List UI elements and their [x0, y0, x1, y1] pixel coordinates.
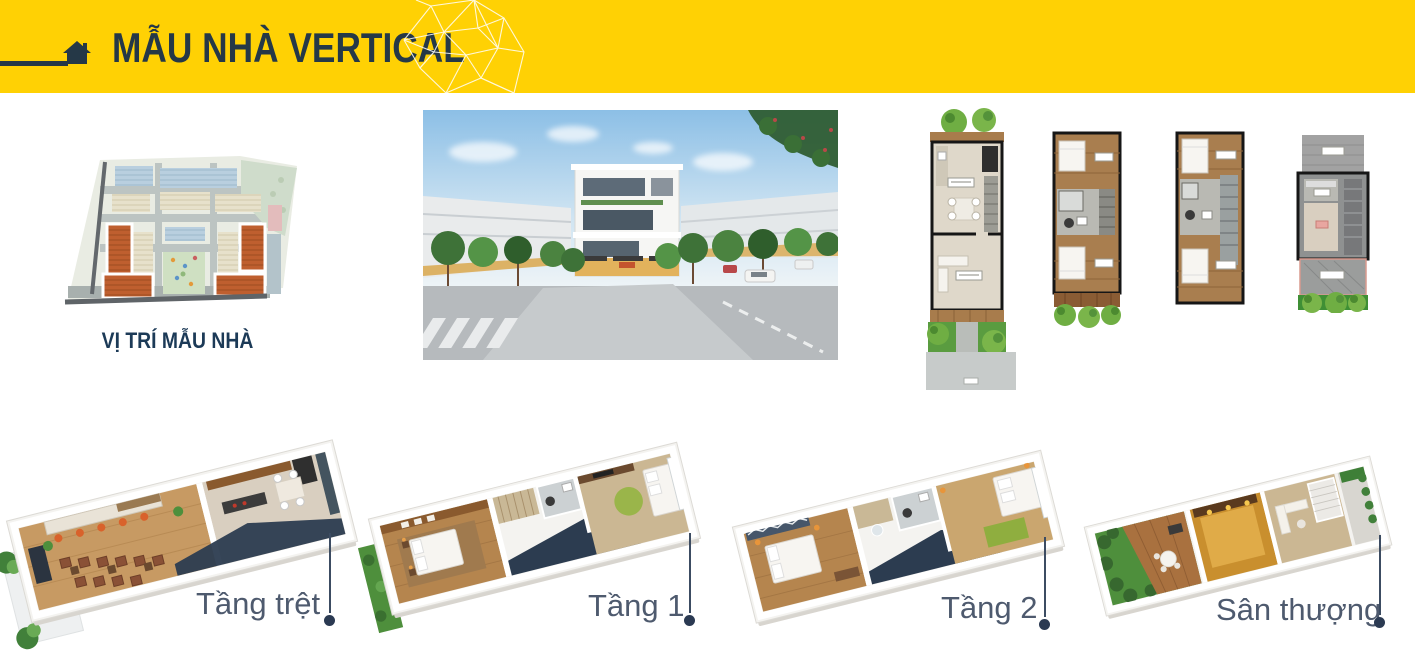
- header-banner: MẪU NHÀ VERTICAL: [0, 0, 1415, 93]
- floor-3d-ground: [4, 396, 376, 648]
- marker-line-rooftop: [1379, 535, 1381, 615]
- brochure-page: MẪU NHÀ VERTICAL: [0, 0, 1415, 672]
- street-perspective-image: [423, 110, 838, 360]
- floor-plan-ground: [926, 106, 1018, 393]
- site-plan-figure: VỊ TRÍ MẪU NHÀ: [55, 128, 345, 363]
- marker-line-first: [689, 533, 691, 613]
- floor-plan-second: [1174, 131, 1246, 313]
- floor-plan-first: [1051, 131, 1123, 329]
- highlight-block-left: [107, 224, 132, 274]
- floor-plan-rooftop: [1294, 131, 1372, 313]
- floor-label-second: Tầng 2: [941, 590, 1038, 626]
- floor-label-rooftop: Sân thượng: [1216, 592, 1381, 628]
- marker-line-ground: [329, 533, 331, 613]
- header-rule: [0, 61, 68, 66]
- floor-label-ground: Tầng trệt: [196, 586, 320, 622]
- highlight-block-bottom-right: [215, 274, 265, 296]
- site-plan-map: [55, 128, 345, 338]
- highlight-block-right: [240, 224, 265, 271]
- diamond-wireframe-icon: [386, 0, 538, 93]
- highlight-block-bottom-left: [103, 274, 153, 298]
- marker-line-second: [1044, 537, 1046, 617]
- floor-label-first: Tầng 1: [588, 588, 685, 624]
- site-plan-caption: VỊ TRÍ MẪU NHÀ: [70, 328, 286, 354]
- home-icon: [63, 41, 91, 66]
